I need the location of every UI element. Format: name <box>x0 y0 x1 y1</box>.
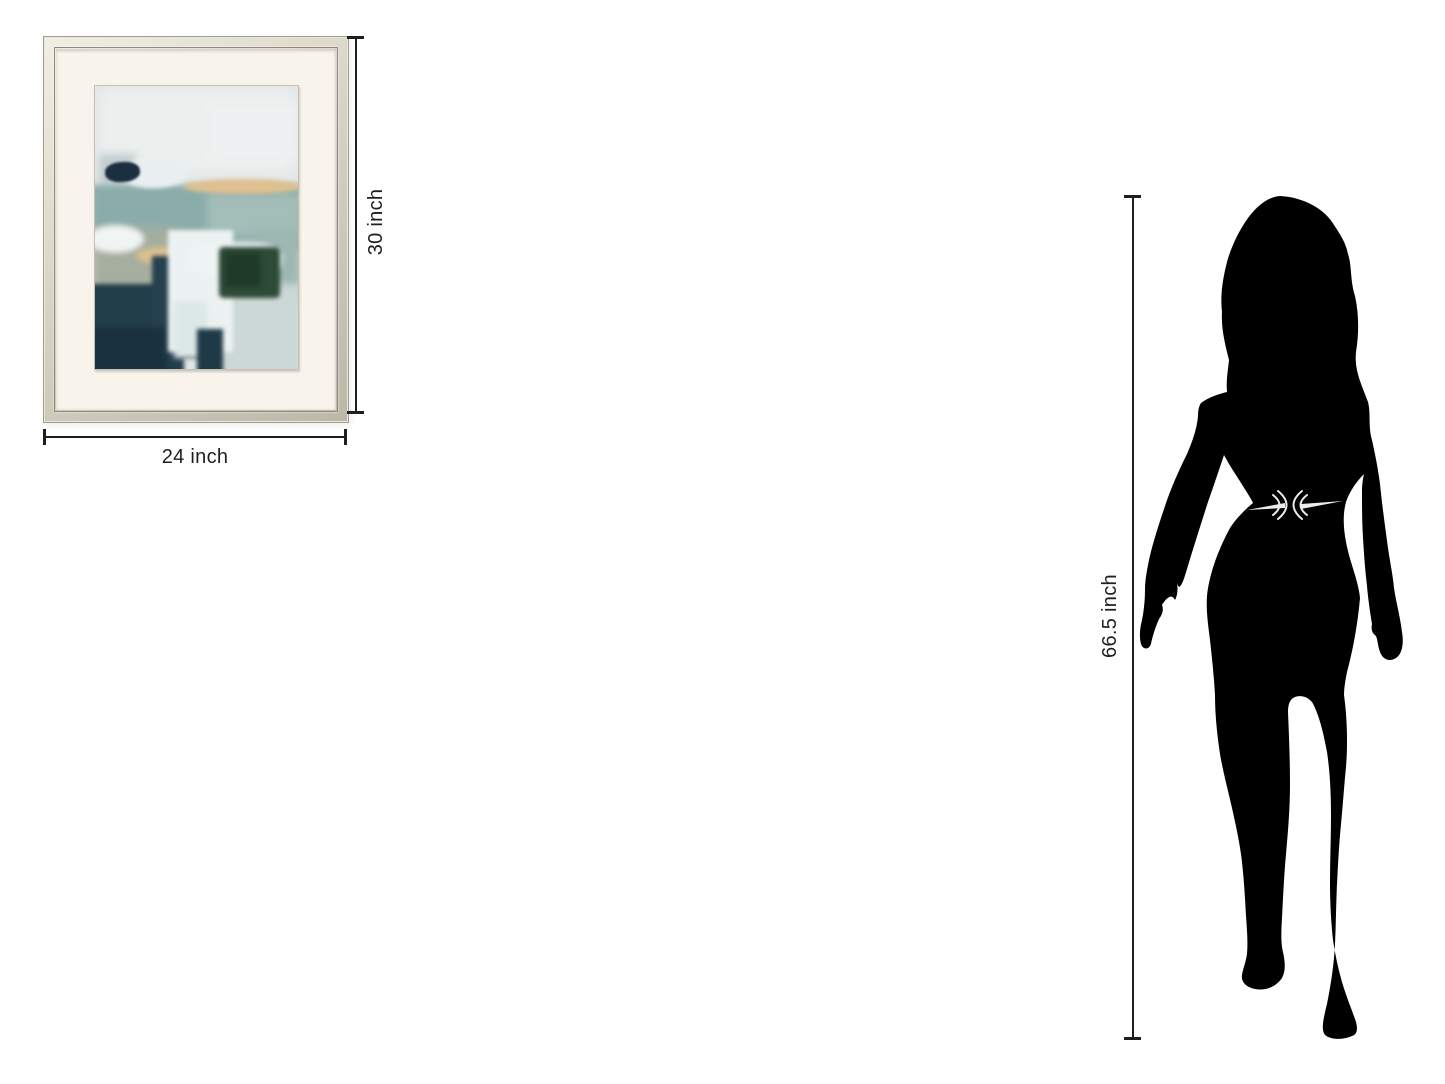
woman-body-shape <box>1140 196 1403 1039</box>
paint-layer-sky-patch-right <box>207 103 296 160</box>
art-width-right-tick <box>344 429 347 445</box>
paint-layer-navy-bottom-center <box>197 329 223 370</box>
paint-layer-green-core <box>225 253 262 287</box>
art-height-top-tick <box>347 36 364 39</box>
paint-layer-tan-streak-upper <box>184 179 299 193</box>
art-width-label: 24 inch <box>135 445 255 469</box>
art-height-bottom-tick <box>347 411 364 414</box>
paint-layer-navy-deep-bottom-left <box>94 327 166 370</box>
art-width-left-tick <box>43 429 46 445</box>
woman-silhouette <box>1135 192 1415 1044</box>
abstract-painting <box>94 85 299 370</box>
framed-artwork <box>43 36 349 423</box>
art-height-label: 30 inch <box>364 172 388 272</box>
art-width-dimension-line <box>43 436 347 438</box>
person-height-label: 66.5 inch <box>1098 556 1122 676</box>
art-height-dimension-line <box>355 37 357 414</box>
person-height-dimension-line <box>1132 196 1134 1037</box>
